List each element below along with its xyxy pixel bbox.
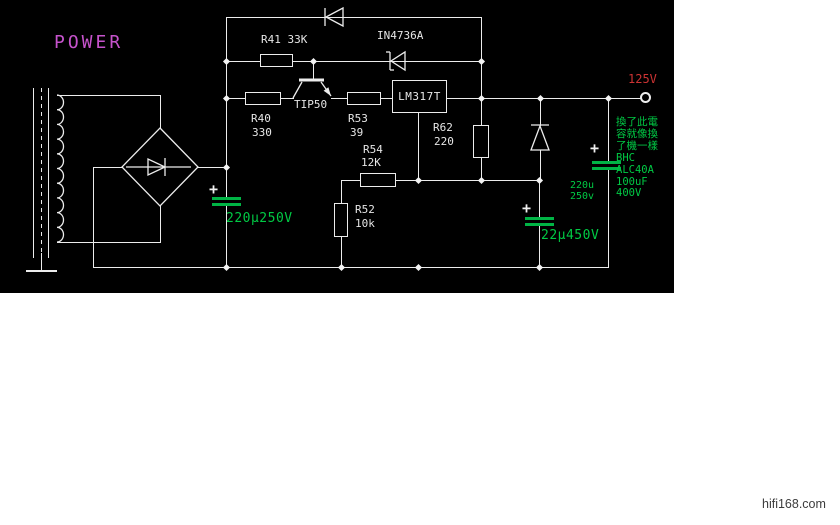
- cap-bhc-voltage: 250v: [570, 191, 594, 202]
- wire-feedback-upper: [481, 17, 482, 126]
- ground-stem: [41, 253, 42, 271]
- annotation-line: BHC: [616, 152, 635, 164]
- transformer-shield-dashed: [41, 88, 42, 254]
- zener-label: IN4736A: [377, 30, 423, 42]
- cap-bhc-plus: +: [590, 141, 599, 155]
- protection-diode-icon: [315, 5, 350, 31]
- resistor-r40: [245, 92, 281, 105]
- node-dot: [537, 95, 544, 102]
- ground-bar: [26, 270, 57, 272]
- wire-r52-top: [341, 180, 342, 204]
- r53-value: 39: [350, 127, 363, 139]
- zener-diode-icon: [382, 48, 412, 74]
- node-dot: [536, 177, 543, 184]
- node-dot: [415, 264, 422, 271]
- node-dot: [478, 95, 485, 102]
- bridge-rectifier-icon: [115, 120, 205, 212]
- cap-out-plus: +: [522, 201, 531, 215]
- cap-main-label: 220µ250V: [226, 213, 293, 225]
- node-dot: [223, 58, 230, 65]
- resistor-r53: [347, 92, 381, 105]
- wire-output-line: [447, 98, 643, 99]
- wire-adj-pin: [418, 113, 419, 181]
- node-dot: [338, 264, 345, 271]
- r54-value: 12K: [361, 157, 381, 169]
- wire-transformer-bottom: [57, 242, 161, 243]
- r53-designator: R53: [348, 113, 368, 125]
- schematic-canvas: LM317T + + + POWER R41 33K IN4736A TIP50…: [0, 0, 674, 293]
- output-terminal: [640, 92, 651, 103]
- wire-adj-left: [341, 180, 361, 181]
- annotation-line: 容就像換: [616, 128, 658, 140]
- wire-top-rail: [226, 17, 482, 18]
- node-dot: [478, 177, 485, 184]
- cap-bhc-side-label: 220u 250v: [570, 180, 594, 202]
- wire-dcminus: [93, 167, 94, 268]
- r62-designator: R62: [433, 122, 453, 134]
- wire-bhc-top: [608, 98, 609, 162]
- annotation-line: 換了此電: [616, 116, 658, 128]
- annotation-note: 換了此電 容就像換 了機一樣 BHC ALC40A 100uF 400V: [616, 117, 658, 200]
- output-diode-icon: [527, 118, 553, 154]
- cap-main-plate-bottom: [212, 203, 241, 206]
- resistor-r52: [334, 203, 348, 237]
- wire-bhc-bottom: [608, 170, 609, 268]
- page-title: POWER: [54, 32, 123, 53]
- regulator-label: LM317T: [398, 90, 441, 103]
- cap-main-plus: +: [209, 182, 218, 196]
- r40-value: 330: [252, 127, 272, 139]
- r54-designator: R54: [363, 144, 383, 156]
- node-dot: [223, 264, 230, 271]
- node-dot: [223, 164, 230, 171]
- resistor-r62: [473, 125, 489, 158]
- cap-out-plate-top: [525, 217, 554, 220]
- transformer-primary-left: [33, 88, 34, 258]
- output-voltage-label: 125V: [628, 73, 657, 85]
- r41-label: R41 33K: [261, 34, 307, 46]
- wire-diode-bottom: [540, 150, 541, 181]
- r52-designator: R52: [355, 204, 375, 216]
- node-dot: [605, 95, 612, 102]
- regulator-lm317: LM317T: [392, 80, 447, 113]
- annotation-line: 400V: [616, 187, 641, 199]
- annotation-line: 了機一樣: [616, 140, 658, 152]
- transformer-coil-icon: [50, 88, 68, 250]
- annotation-line: 100uF: [616, 176, 648, 188]
- wire-bottom-rail: [93, 267, 609, 268]
- r52-value: 10k: [355, 218, 375, 230]
- cap-bhc-value: 220u: [570, 180, 594, 191]
- node-dot: [478, 58, 485, 65]
- cap-out-label: 22µ450V: [541, 230, 599, 242]
- resistor-r41: [260, 54, 293, 67]
- wire-transformer-top: [57, 95, 161, 96]
- node-dot: [415, 177, 422, 184]
- r62-value: 220: [434, 136, 454, 148]
- transistor-label: TIP50: [294, 99, 327, 111]
- annotation-line: ALC40A: [616, 164, 654, 176]
- node-dot: [223, 95, 230, 102]
- node-dot: [536, 264, 543, 271]
- r40-designator: R40: [251, 113, 271, 125]
- cap-out-plate-bottom: [525, 223, 554, 226]
- wire-capout-top: [539, 180, 540, 218]
- resistor-r54: [360, 173, 396, 187]
- watermark: hifi168.com: [762, 497, 826, 511]
- page: LM317T + + + POWER R41 33K IN4736A TIP50…: [0, 0, 840, 525]
